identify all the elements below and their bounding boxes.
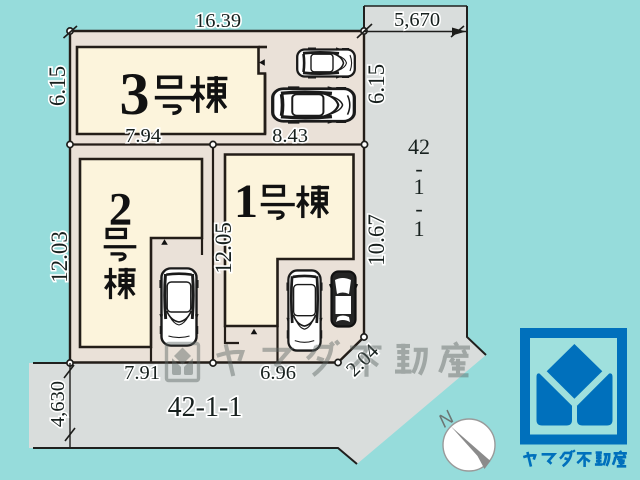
svg-text:8.43: 8.43	[272, 125, 308, 147]
svg-text:2: 2	[109, 184, 133, 236]
svg-text:1: 1	[414, 216, 425, 241]
svg-text:10.67: 10.67	[364, 214, 389, 266]
svg-text:16.39: 16.39	[195, 10, 241, 32]
svg-text:7.94: 7.94	[125, 125, 161, 147]
svg-text:4,630: 4,630	[47, 381, 69, 427]
svg-text:7.91: 7.91	[124, 362, 160, 384]
svg-text:12.05: 12.05	[211, 222, 236, 274]
svg-text:12.03: 12.03	[47, 231, 72, 283]
svg-text:1: 1	[234, 175, 258, 228]
svg-text:6.15: 6.15	[364, 64, 389, 104]
svg-text:6.15: 6.15	[45, 66, 70, 106]
svg-text:42-1-1: 42-1-1	[168, 392, 243, 423]
svg-text:3: 3	[120, 61, 150, 127]
svg-text:5,670: 5,670	[394, 9, 440, 31]
